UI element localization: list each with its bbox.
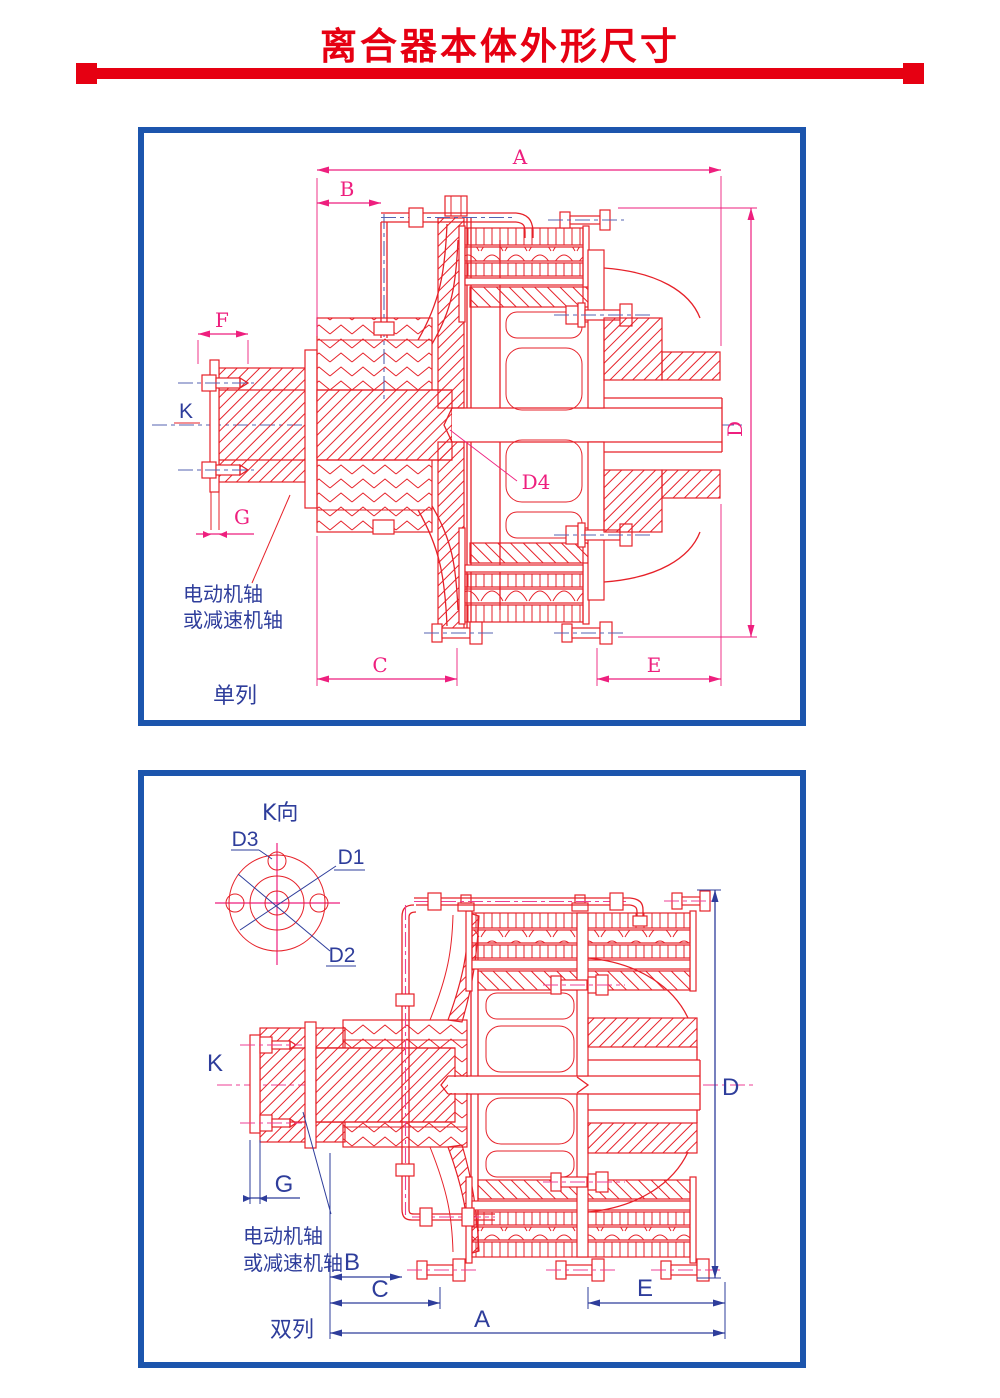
dim-label-D: D [723, 421, 747, 437]
dim-label-B: B [344, 1249, 360, 1276]
shaft-note-line1: 电动机轴 [183, 582, 263, 606]
page-title: 离合器本体外形尺寸 [0, 16, 1000, 70]
dim-label-D: D [722, 1074, 739, 1101]
double-row-drawing: K向 D3 D1 D2 [144, 776, 800, 1362]
dim-label-C: C [371, 1276, 388, 1303]
double-row-drawing-frame: K向 D3 D1 D2 [138, 770, 806, 1368]
title-rule-right-cap [903, 63, 924, 84]
motor-shaft [178, 350, 317, 530]
k-label: K [207, 1050, 223, 1077]
k-view-label: K向 [262, 801, 298, 826]
dim-label-G: G [234, 505, 250, 529]
dim-A: A [330, 1282, 725, 1339]
dim-B: B [330, 1153, 402, 1339]
title-rule-left-cap [76, 63, 97, 84]
dim-C: C [330, 1276, 440, 1309]
center-bore [444, 408, 722, 442]
dim-label-D2: D2 [329, 944, 356, 967]
dim-label-F: F [215, 308, 229, 332]
dim-label-D1: D1 [338, 846, 365, 869]
dim-G: G [196, 505, 254, 538]
dim-label-E: E [637, 1275, 653, 1302]
dim-label-C: C [372, 653, 387, 677]
shaft-note-line2: 或减速机轴 [243, 1251, 343, 1275]
title-rule [96, 68, 904, 79]
shaft-note-line2: 或减速机轴 [183, 608, 283, 632]
single-row-drawing-frame: A B F G C E D D4 K 电动机轴 或减速机轴 [138, 127, 806, 726]
dim-B: B [317, 177, 381, 203]
k-view: K向 D3 D1 D2 [215, 801, 365, 967]
center-bore [441, 1076, 700, 1094]
dim-label-A: A [512, 145, 528, 169]
dim-label-G: G [275, 1171, 294, 1198]
dim-label-E: E [647, 653, 662, 677]
dim-label-D4: D4 [522, 470, 551, 494]
k-direction-mark: K [174, 400, 200, 423]
dim-D: D [697, 890, 739, 1278]
dim-G: G [243, 1140, 300, 1204]
caption-double-row: 双列 [270, 1318, 314, 1343]
dim-label-D3: D3 [232, 828, 259, 851]
bottom-bolts [407, 1259, 723, 1281]
dim-F: F [198, 308, 248, 364]
k-label: K [179, 400, 193, 423]
single-row-drawing: A B F G C E D D4 K 电动机轴 或减速机轴 [144, 133, 800, 720]
dim-label-B: B [340, 177, 355, 201]
caption-single-row: 单列 [213, 684, 257, 709]
dim-label-A: A [474, 1306, 490, 1333]
dim-C: C [317, 536, 457, 686]
shaft-note-line1: 电动机轴 [243, 1224, 323, 1248]
